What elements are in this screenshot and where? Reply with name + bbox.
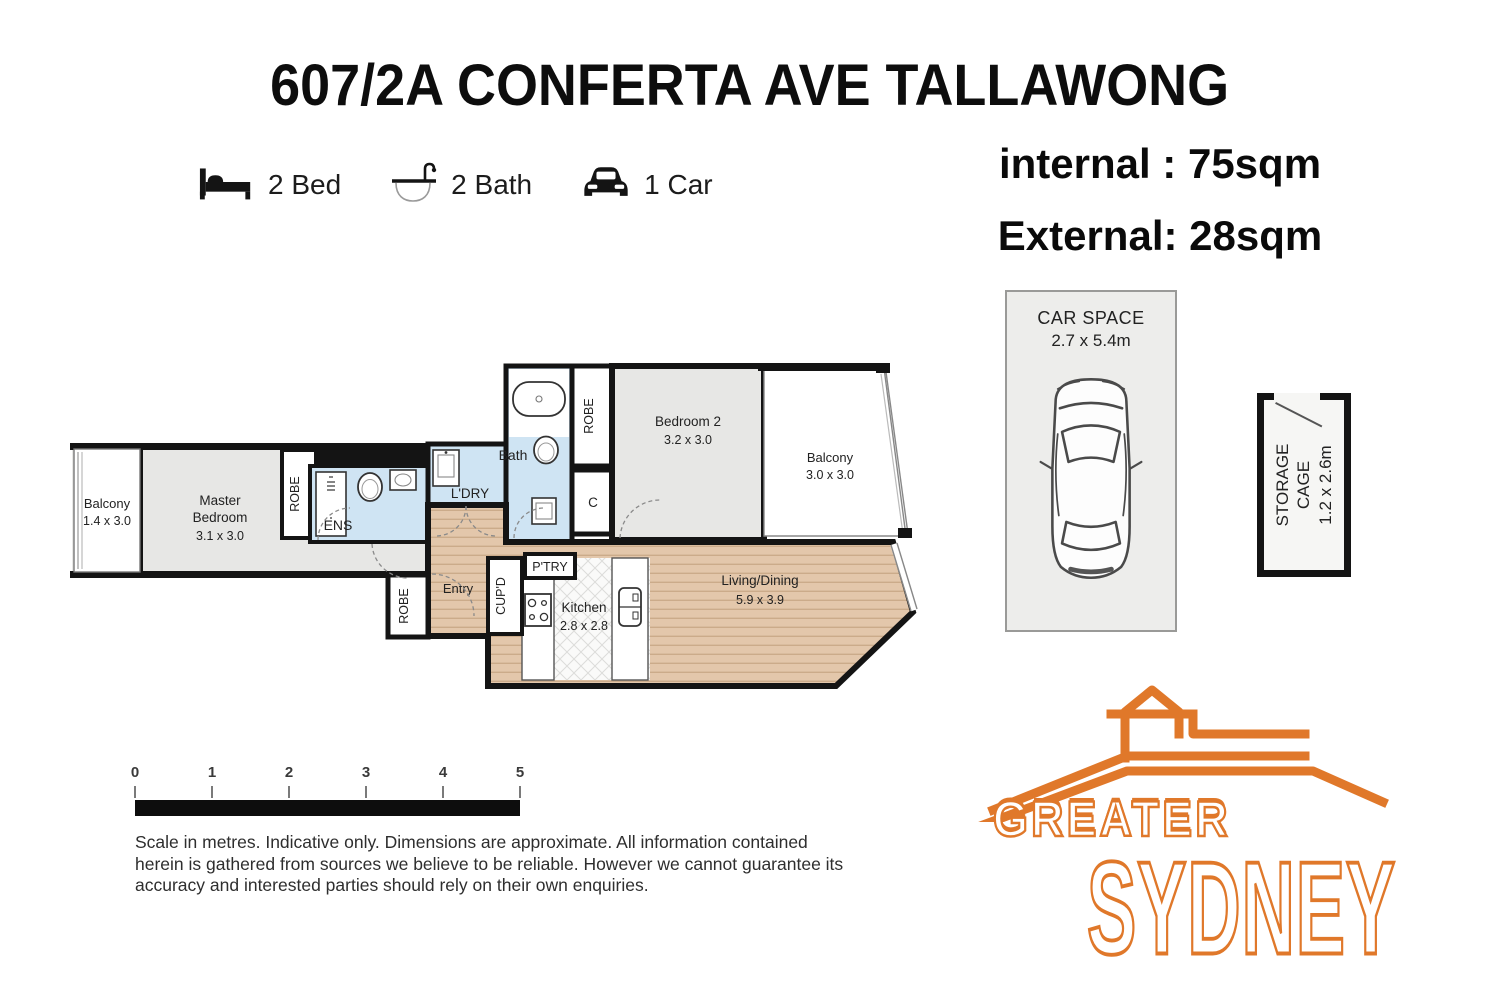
balcony2-label: Balcony bbox=[807, 450, 854, 465]
scale-bar: 0 1 2 3 4 5 bbox=[135, 764, 520, 820]
scale-tick-label: 0 bbox=[131, 764, 139, 781]
bed-count-label: 2 Bed bbox=[268, 169, 341, 201]
bed-icon bbox=[198, 162, 256, 207]
room-laundry: L'DRY bbox=[428, 444, 506, 506]
cooktop bbox=[525, 594, 551, 626]
scale-tick bbox=[519, 786, 521, 798]
living-label: Living/Dining bbox=[721, 573, 798, 588]
toilet bbox=[534, 437, 558, 464]
floorplan: Balcony 1.4 x 3.0 Master Bedroom 3.1 x 3… bbox=[70, 358, 930, 693]
room-ens: ENS bbox=[310, 466, 428, 542]
master-label-2: Bedroom bbox=[193, 510, 248, 525]
laundry-label: L'DRY bbox=[451, 486, 489, 501]
bath-label: Bath bbox=[499, 447, 528, 463]
storage-dims: 1.2 x 2.6m bbox=[1315, 400, 1336, 570]
feature-row: 2 Bed 2 Bath 1 Car bbox=[198, 160, 761, 209]
bathtub bbox=[513, 382, 565, 416]
robe-label: ROBE bbox=[397, 588, 411, 623]
pantry-label: P'TRY bbox=[532, 560, 568, 574]
bedroom2-label: Bedroom 2 bbox=[655, 414, 721, 429]
feature-bath: 2 Bath bbox=[389, 160, 532, 209]
toilet bbox=[358, 473, 382, 501]
scale-tick-label: 1 bbox=[208, 764, 216, 781]
cupboard-c: C bbox=[572, 470, 614, 534]
balcony1-label: Balcony bbox=[84, 496, 131, 511]
car-icon bbox=[580, 162, 632, 207]
car-space-title: CAR SPACE bbox=[1037, 308, 1144, 329]
cupd-label: CUP'D bbox=[494, 577, 508, 615]
storage-cage-panel: STORAGE CAGE 1.2 x 2.6m bbox=[1257, 393, 1351, 577]
robe-bedroom2: ROBE bbox=[572, 366, 614, 466]
internal-area-text: internal : 75sqm bbox=[935, 140, 1385, 188]
car-count-label: 1 Car bbox=[644, 169, 712, 201]
disclaimer-text: Scale in metres. Indicative only. Dimens… bbox=[135, 832, 845, 897]
storage-line1: STORAGE bbox=[1272, 400, 1293, 570]
feature-car: 1 Car bbox=[580, 162, 712, 207]
robe-entry: ROBE bbox=[388, 575, 428, 637]
kitchen-label: Kitchen bbox=[561, 600, 606, 615]
room-balcony-1: Balcony 1.4 x 3.0 bbox=[74, 449, 140, 572]
external-area-text: External: 28sqm bbox=[935, 212, 1385, 260]
bath-count-label: 2 Bath bbox=[451, 169, 532, 201]
feature-bed: 2 Bed bbox=[198, 162, 341, 207]
scale-tick-label: 5 bbox=[516, 764, 524, 781]
bedroom2-dims: 3.2 x 3.0 bbox=[664, 433, 712, 447]
logo-sydney-text: SYDNEY bbox=[1087, 832, 1396, 985]
room-bedroom-2: Bedroom 2 3.2 x 3.0 bbox=[612, 366, 764, 540]
page-title: 607/2A CONFERTA AVE TALLAWONG bbox=[0, 52, 1500, 119]
scale-tick-label: 2 bbox=[285, 764, 293, 781]
storage-line2: CAGE bbox=[1293, 400, 1314, 570]
robe-label: ROBE bbox=[288, 476, 302, 511]
c-label: C bbox=[588, 495, 598, 510]
agency-logo: GREATER SYDNEY bbox=[975, 662, 1395, 992]
vanity-sink bbox=[390, 470, 416, 490]
scale-tick bbox=[288, 786, 290, 798]
scale-bar-rule bbox=[135, 800, 520, 816]
pantry: P'TRY bbox=[525, 554, 575, 578]
scale-tick bbox=[211, 786, 213, 798]
robe-label: ROBE bbox=[582, 398, 596, 433]
car-space-panel: CAR SPACE 2.7 x 5.4m bbox=[1005, 290, 1177, 632]
cupboard: CUP'D bbox=[488, 558, 522, 634]
living-dims: 5.9 x 3.9 bbox=[736, 593, 784, 607]
car-space-dims: 2.7 x 5.4m bbox=[1051, 331, 1130, 351]
ens-label: ENS bbox=[324, 517, 353, 533]
balcony2-dims: 3.0 x 3.0 bbox=[806, 468, 854, 482]
car-topview-icon bbox=[1032, 359, 1150, 597]
kitchen-dims: 2.8 x 2.8 bbox=[560, 619, 608, 633]
scale-tick-label: 4 bbox=[439, 764, 447, 781]
master-dims: 3.1 x 3.0 bbox=[196, 529, 244, 543]
room-balcony-2: Balcony 3.0 x 3.0 bbox=[758, 363, 912, 538]
bath-icon bbox=[389, 160, 439, 209]
scale-tick-label: 3 bbox=[362, 764, 370, 781]
wall bbox=[758, 363, 888, 371]
room-bath: Bath bbox=[499, 366, 572, 542]
scale-tick bbox=[134, 786, 136, 798]
master-label-1: Master bbox=[199, 493, 241, 508]
balcony1-dims: 1.4 x 3.0 bbox=[83, 514, 131, 528]
scale-tick bbox=[365, 786, 367, 798]
scale-tick bbox=[442, 786, 444, 798]
